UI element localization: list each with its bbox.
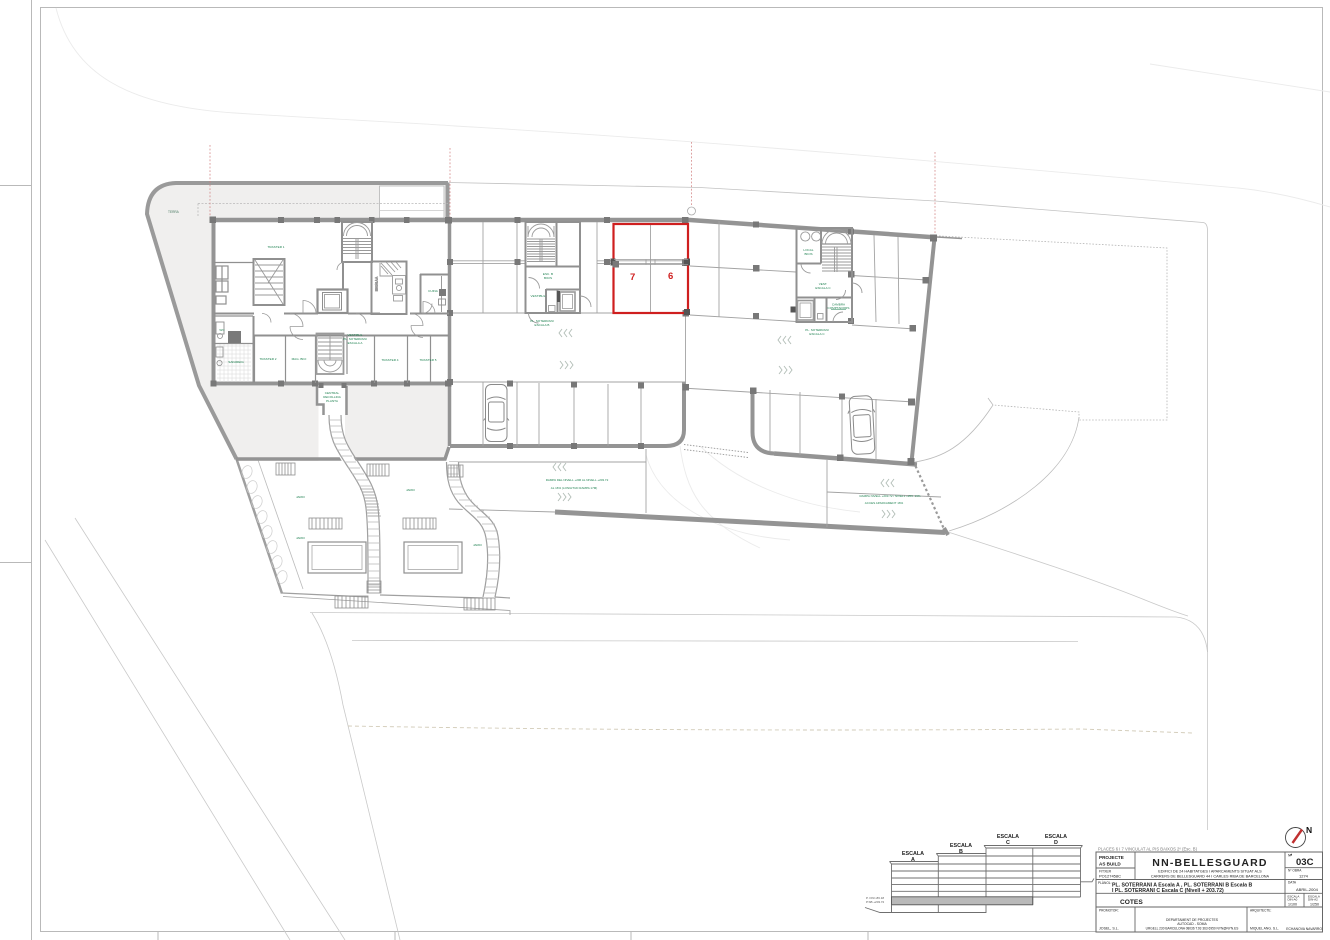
svg-text:NN-BELLESGUARD: NN-BELLESGUARD bbox=[1152, 857, 1267, 869]
svg-text:ESCALA C: ESCALA C bbox=[815, 286, 831, 290]
svg-text:C: C bbox=[1006, 840, 1010, 846]
svg-text:Nº OBRA: Nº OBRA bbox=[1288, 869, 1302, 873]
svg-text:JARDI: JARDI bbox=[296, 495, 305, 499]
svg-text:JARDI: JARDI bbox=[406, 488, 415, 492]
svg-text:BICIS: BICIS bbox=[804, 252, 812, 256]
svg-text:TRASTER 4: TRASTER 4 bbox=[381, 358, 398, 362]
svg-text:ARQUITECTE:: ARQUITECTE: bbox=[1250, 909, 1272, 913]
svg-text:TRASTER 1: TRASTER 1 bbox=[267, 245, 284, 249]
svg-text:ECHANOVA NAVARRO: ECHANOVA NAVARRO bbox=[1286, 927, 1322, 931]
svg-text:DATA: DATA bbox=[1288, 881, 1297, 885]
svg-text:N: N bbox=[1306, 825, 1312, 835]
svg-text:PO127458C: PO127458C bbox=[1099, 874, 1121, 879]
svg-text:EDIFICI DE 24 HABITATGES I APA: EDIFICI DE 24 HABITATGES I APARCAMENTS S… bbox=[1158, 870, 1262, 874]
svg-text:B: B bbox=[959, 849, 963, 855]
svg-text:6: 6 bbox=[668, 271, 673, 282]
svg-text:TERRA: TERRA bbox=[168, 210, 180, 214]
svg-text:DIN-A2: DIN-A2 bbox=[1308, 898, 1318, 902]
svg-text:CARRERS DE BELLESGUARD 44 I CA: CARRERS DE BELLESGUARD 44 I CARLES RIBA … bbox=[1151, 874, 1270, 878]
svg-text:I PL. SOTERRANI C Escala C (Ni: I PL. SOTERRANI C Escala C (Nivell + 203… bbox=[1112, 888, 1224, 894]
svg-text:COMPTADORS: COMPTADORS bbox=[828, 306, 850, 310]
svg-text:BICIS: BICIS bbox=[544, 276, 552, 280]
svg-text:RAMPA DEL NIVELL +206 AL NIVEL: RAMPA DEL NIVELL +206 AL NIVELL +203.72 bbox=[546, 478, 609, 482]
svg-text:URGELL 230 BARCELONA 08036 T.9: URGELL 230 BARCELONA 08036 T.93 363 6950… bbox=[1146, 927, 1239, 931]
svg-text:RAMPA NIVELL +203.72 / NIVELL: RAMPA NIVELL +203.72 / NIVELL +206. 16% bbox=[859, 494, 920, 498]
svg-text:TRASTER 2: TRASTER 2 bbox=[259, 357, 276, 361]
svg-text:AL 16% (LONGITUD RAMPA 17M): AL 16% (LONGITUD RAMPA 17M) bbox=[551, 486, 598, 490]
svg-text:ESCALA A: ESCALA A bbox=[375, 277, 379, 291]
svg-text:JARDI: JARDI bbox=[296, 536, 305, 540]
svg-text:03C: 03C bbox=[1296, 857, 1314, 868]
svg-text:TRASTER 5: TRASTER 5 bbox=[419, 358, 436, 362]
svg-text:COTES: COTES bbox=[1120, 899, 1143, 906]
svg-text:D: D bbox=[1054, 840, 1058, 846]
svg-text:PROMOTOR:: PROMOTOR: bbox=[1099, 909, 1119, 913]
svg-text:PLÀNOL:: PLÀNOL: bbox=[1098, 881, 1112, 885]
svg-text:ACCES APARCAMENT 16%: ACCES APARCAMENT 16% bbox=[865, 501, 904, 505]
svg-text:7: 7 bbox=[630, 272, 635, 283]
svg-text:JARDI: JARDI bbox=[473, 543, 482, 547]
svg-text:ESCALA C: ESCALA C bbox=[809, 332, 825, 336]
svg-text:ESCALA B: ESCALA B bbox=[535, 323, 550, 327]
svg-text:1/250: 1/250 bbox=[1310, 903, 1319, 907]
svg-text:VESTIBUL: VESTIBUL bbox=[531, 294, 546, 298]
svg-text:P.SB +203.72: P.SB +203.72 bbox=[866, 900, 885, 904]
svg-text:CUINA: CUINA bbox=[428, 289, 439, 293]
svg-text:1274: 1274 bbox=[1299, 874, 1309, 879]
svg-text:MAG. BICI: MAG. BICI bbox=[292, 357, 307, 361]
svg-text:A: A bbox=[911, 857, 915, 863]
svg-text:MIQUEL ANG. S.L.: MIQUEL ANG. S.L. bbox=[1250, 927, 1279, 931]
svg-text:JOSEL, S.L.: JOSEL, S.L. bbox=[1099, 927, 1119, 931]
svg-text:DIN-A0: DIN-A0 bbox=[1288, 898, 1298, 902]
svg-text:1/100: 1/100 bbox=[1288, 903, 1297, 907]
svg-text:ABRIL-2004: ABRIL-2004 bbox=[1296, 887, 1319, 892]
svg-text:WC: WC bbox=[219, 328, 225, 332]
svg-text:PLANTA: PLANTA bbox=[326, 399, 339, 403]
svg-text:PROJECTE: PROJECTE bbox=[1099, 855, 1124, 860]
svg-text:SAFAREIG: SAFAREIG bbox=[228, 360, 244, 364]
svg-text:AUTOCAD - SOMA: AUTOCAD - SOMA bbox=[1177, 922, 1207, 926]
svg-text:ESCALA A: ESCALA A bbox=[348, 341, 364, 345]
svg-text:PLACES 6 I 7 VINCULAT AL PIS B: PLACES 6 I 7 VINCULAT AL PIS BAIXOS 2º (… bbox=[1098, 847, 1198, 852]
svg-text:AS BUILD: AS BUILD bbox=[1099, 862, 1121, 867]
